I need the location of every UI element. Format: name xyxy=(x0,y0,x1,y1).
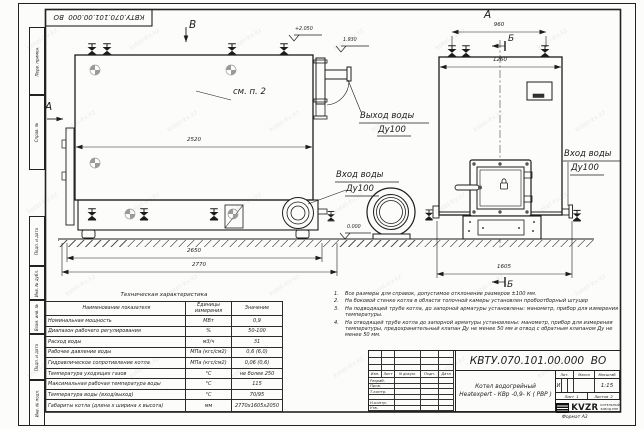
margin-box-inv-podl: Инв. № подл. xyxy=(29,380,45,426)
titleblock-cell xyxy=(369,358,382,365)
titleblock-cell: Дата xyxy=(439,371,454,378)
water-outlet-dn: Ду100 xyxy=(378,126,406,135)
scale-value: 1:15 xyxy=(595,379,620,392)
mass-value xyxy=(574,379,595,392)
titleblock-cell xyxy=(439,358,454,365)
sheets-cell: Листов2 xyxy=(588,393,620,399)
spec-cell: Температура уходящих газов xyxy=(46,369,186,379)
spec-cell: 31 xyxy=(232,337,282,347)
titleblock-cell xyxy=(382,358,395,365)
lit-label: Лит. xyxy=(556,371,574,378)
dim-2770: 2770 xyxy=(192,263,206,269)
corner-stamp-doc-number: КВТУ.070.101.00.000 ВО xyxy=(46,9,152,25)
spec-cell: Номинальная мощность xyxy=(46,316,186,326)
spec-cell: °С xyxy=(186,379,232,389)
spec-cell: Температура воды (вход/выход) xyxy=(46,390,186,400)
titleblock-cell xyxy=(421,351,439,358)
spec-cell: не более 250 xyxy=(232,369,282,379)
company-logo: KVZR КОТЕЛЬНЫЙ ЗАВОД РЭП xyxy=(556,400,620,415)
titleblock-cell: Утв. xyxy=(369,406,395,411)
dim-1605: 1605 xyxy=(497,265,511,271)
spec-cell: м3/ч xyxy=(186,337,232,347)
titleblock-cell xyxy=(421,406,439,411)
spec-row: Расход водым3/ч31 xyxy=(46,337,282,348)
margin-box-podp-data-2: Подп. и дата xyxy=(29,334,45,380)
mass-label: Масса xyxy=(574,371,595,378)
dim-1260: 1260 xyxy=(493,58,507,64)
titleblock-cell xyxy=(369,351,382,358)
water-outlet-label: Выход воды xyxy=(360,112,414,121)
spec-cell: % xyxy=(186,327,232,337)
note-1: 1.Все размеры для справок, допустимое от… xyxy=(334,291,626,297)
margin-box-perv-primen: Перв. примен. xyxy=(29,27,45,95)
dim-2520: 2520 xyxy=(187,138,201,144)
elevation-top: +2.050 xyxy=(295,28,313,33)
titleblock-cell xyxy=(395,365,421,372)
elevation-mid: 1.930 xyxy=(343,39,357,44)
water-inlet-left-dn: Ду100 xyxy=(346,185,374,194)
format-label: Формат А3 xyxy=(562,416,588,421)
water-inlet-right-dn: Ду100 xyxy=(571,164,599,173)
view-a-label: А xyxy=(484,10,491,21)
titleblock-right: Лит. Масса Масштаб И 1:15 Лист1 Листов2 … xyxy=(556,371,620,411)
titleblock-cell xyxy=(369,365,382,372)
titleblock-cell xyxy=(439,365,454,372)
spec-row: Гидравлическое сопротивление котлаМПа (к… xyxy=(46,358,282,369)
spec-cell: Габариты котла (длина х ширина х высота) xyxy=(46,400,186,411)
titleblock-cell xyxy=(439,351,454,358)
boiler-side-view xyxy=(62,55,351,238)
titleblock-cell: Изм. xyxy=(369,371,382,378)
dim-960: 960 xyxy=(494,23,505,29)
valve-icons-side-view xyxy=(88,44,335,221)
see-note-annotation: см. п. 2 xyxy=(233,88,266,97)
product-name-line1: Котел водогрейный xyxy=(475,384,536,390)
titleblock-cell: Подп. xyxy=(421,371,439,378)
margin-box-vzam-inv: Взам. инв. № xyxy=(29,300,45,334)
water-inlet-left-label: Вход воды xyxy=(336,171,383,180)
spec-cell: Диапазон рабочего регулирования xyxy=(46,327,186,337)
spec-header-value: Значение xyxy=(232,302,282,315)
spec-cell: МПа (кгс/см2) xyxy=(186,348,232,358)
target-marks xyxy=(90,65,238,219)
titleblock-left: Изм.ЛистN докум.Подп.ДатаРазраб.Пров.Т.к… xyxy=(369,351,456,411)
view-a-arrow-label: А xyxy=(45,102,52,113)
margin-box-inv-dubl: Инв. № дубл. xyxy=(29,266,45,300)
titleblock-cell xyxy=(395,358,421,365)
margin-box-podp-data-1: Подп. и дата xyxy=(29,216,45,266)
spec-cell: 115 xyxy=(232,379,282,389)
elevation-zero: 0.000 xyxy=(347,226,361,231)
spec-table-title: Техническая характеристика xyxy=(121,293,208,299)
titleblock-cell xyxy=(439,406,454,411)
titleblock-cell: N докум. xyxy=(395,371,421,378)
spec-header-name: Наименование показателя xyxy=(46,302,186,315)
leader-lines xyxy=(196,80,621,206)
titleblock-cell xyxy=(382,351,395,358)
note-2: 2.На боковой стенке котла в области топо… xyxy=(334,298,626,304)
spec-row: Габариты котла (длина х ширина х высота)… xyxy=(46,400,282,411)
dim-2650: 2650 xyxy=(187,249,201,255)
spec-cell: МПа (кгс/см2) xyxy=(186,358,232,368)
spec-row: Температура воды (вход/выход)°С70/95 xyxy=(46,390,282,401)
note-4: 4.На отводящей трубе котла до запорной а… xyxy=(334,320,626,339)
scale-label: Масштаб xyxy=(595,371,620,378)
spec-cell: 0,6 (6,0) xyxy=(232,348,282,358)
spec-cell: Максимальная рабочая температура воды xyxy=(46,379,186,389)
title-block: Изм.ЛистN докум.Подп.ДатаРазраб.Пров.Т.к… xyxy=(368,350,621,412)
spec-cell: Расход воды xyxy=(46,337,186,347)
view-section-marks xyxy=(47,27,505,287)
spec-cell: °С xyxy=(186,390,232,400)
titleblock-cell xyxy=(382,365,395,372)
notes-list: 1.Все размеры для справок, допустимое от… xyxy=(334,291,626,340)
spec-row: Температура уходящих газов°Сне более 250 xyxy=(46,369,282,380)
spec-row: Максимальная рабочая температура воды°С1… xyxy=(46,379,282,390)
titleblock-cell xyxy=(395,406,421,411)
titleblock-cell: Лист xyxy=(382,371,395,378)
spec-cell: Гидравлическое сопротивление котла xyxy=(46,358,186,368)
spec-header-units: Единицы измерения xyxy=(186,302,232,315)
company-name: КОТЕЛЬНЫЙ ЗАВОД РЭП xyxy=(600,404,620,411)
kvzr-flag-icon xyxy=(556,403,569,413)
titleblock-cell xyxy=(421,365,439,372)
margin-box-sprav-no: Справ. № xyxy=(29,95,45,170)
note-3: 3.На подводящей трубе котла, до запорной… xyxy=(334,306,626,319)
spec-header-row: Наименование показателя Единицы измерени… xyxy=(46,302,282,316)
sheet-cell: Лист1 xyxy=(556,393,588,399)
spec-table: Наименование показателя Единицы измерени… xyxy=(45,301,283,412)
spec-cell: 0,9 xyxy=(232,316,282,326)
titleblock-cell xyxy=(421,358,439,365)
spec-cell: МВт xyxy=(186,316,232,326)
spec-cell: Рабочее давление воды xyxy=(46,348,186,358)
spec-cell: °С xyxy=(186,369,232,379)
boiler-front-view xyxy=(433,40,573,250)
dimension-lines xyxy=(62,32,572,278)
section-b-top-label: Б xyxy=(508,35,514,44)
titleblock-cell xyxy=(395,351,421,358)
doc-number: КВТУ.070.101.00.000 ВО xyxy=(456,351,620,371)
product-name-line2: Heatexpert - КВр -0,9- К ( РВР ) xyxy=(459,392,551,398)
kvzr-logo-text: KVZR xyxy=(571,403,598,413)
drawing-sheet: КВТУ.070.101.00.000 ВО Перв. примен. Спр… xyxy=(0,0,644,430)
spec-cell: мм xyxy=(186,400,232,411)
spec-row: Номинальная мощностьМВт0,9 xyxy=(46,316,282,327)
section-b-bottom-label: Б xyxy=(507,281,513,290)
spec-cell: 2770х1605х2050 xyxy=(232,400,282,411)
product-name: Котел водогрейный Heatexpert - КВр -0,9-… xyxy=(456,371,556,411)
water-inlet-right-label: Вход воды xyxy=(564,150,611,159)
spec-row: Рабочее давление водыМПа (кгс/см2)0,6 (6… xyxy=(46,348,282,359)
door-handle xyxy=(455,185,479,190)
spec-cell: 70/95 xyxy=(232,390,282,400)
spec-row: Диапазон рабочего регулирования%50-100 xyxy=(46,327,282,338)
spec-cell: 0,06 (0,6) xyxy=(232,358,282,368)
spec-cell: 50-100 xyxy=(232,327,282,337)
view-b-label: В xyxy=(189,20,196,31)
